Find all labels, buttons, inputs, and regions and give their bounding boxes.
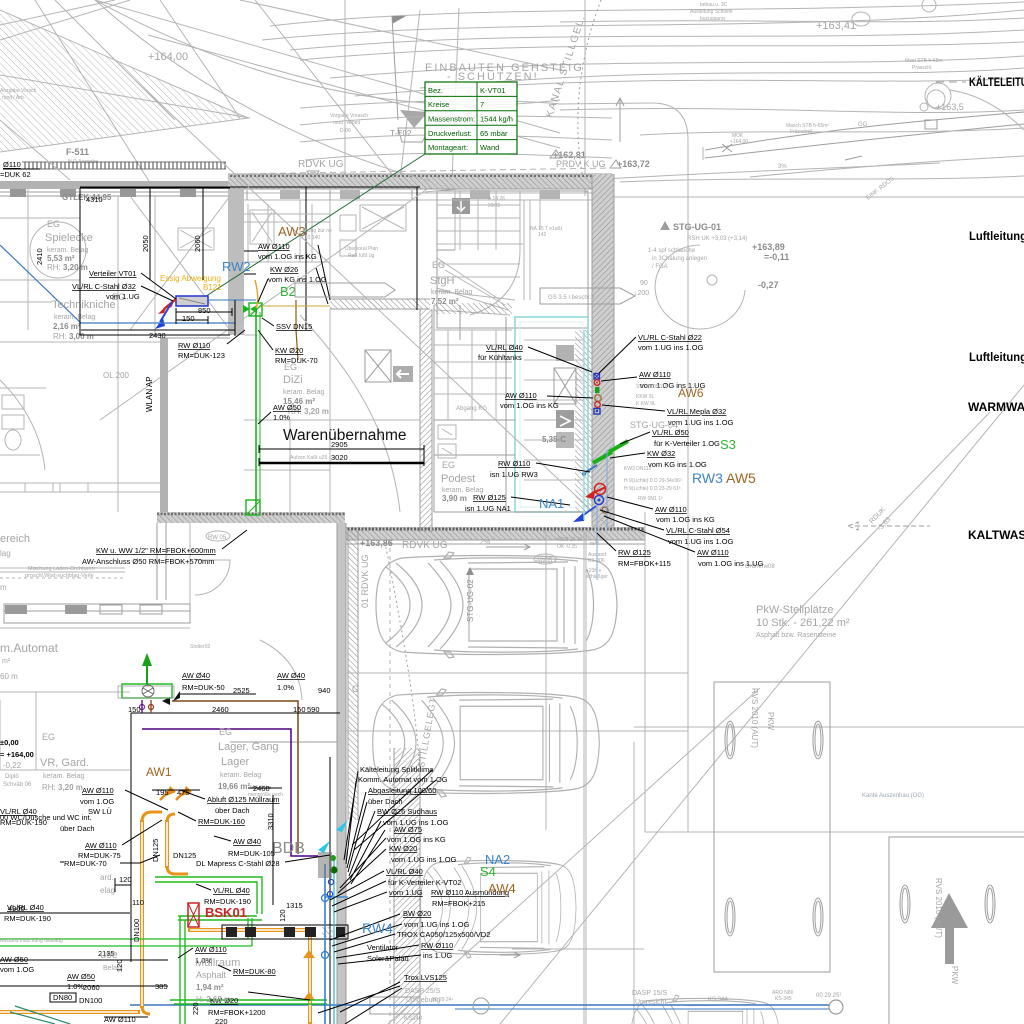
svg-text:1544 kg/h: 1544 kg/h xyxy=(480,115,513,124)
svg-text:GS 3.5 I beschr.b: GS 3.5 I beschr.b xyxy=(548,295,595,301)
svg-text:KS340: KS340 xyxy=(404,1016,423,1022)
svg-text:A 14 26: A 14 26 xyxy=(488,196,505,202)
svg-text:Lager: Lager xyxy=(221,756,249,768)
svg-text:WARMWASSER: WARMWASSER xyxy=(968,400,1024,414)
svg-text:VL/RL Ø40: VL/RL Ø40 xyxy=(0,807,37,816)
svg-text:AW5: AW5 xyxy=(726,470,756,486)
svg-text:Überkoral Plan: Überkoral Plan xyxy=(345,245,378,252)
svg-text:für K-Verteiler 1.OG: für K-Verteiler 1.OG xyxy=(654,439,720,448)
svg-text:RSH UK +3,03 (+3,14): RSH UK +3,03 (+3,14) xyxy=(687,236,747,242)
svg-text:VR, Gard.: VR, Gard. xyxy=(40,757,89,769)
svg-text:Soler&Palau: Soler&Palau xyxy=(367,954,409,963)
svg-text:AW Ø50: AW Ø50 xyxy=(67,972,95,981)
svg-text:Komm. Automat vom 1.OG: Komm. Automat vom 1.OG xyxy=(358,775,448,784)
svg-text:3020: 3020 xyxy=(331,453,348,462)
svg-text:1315: 1315 xyxy=(286,901,303,910)
svg-text:Ausleitung Schleife: Ausleitung Schleife xyxy=(690,9,733,15)
svg-text:AW Ø110: AW Ø110 xyxy=(505,391,537,400)
svg-text:RM=DUK-190: RM=DUK-190 xyxy=(0,818,47,827)
svg-text:-0,22: -0,22 xyxy=(3,761,22,770)
svg-text:= +164,00: = +164,00 xyxy=(0,750,34,759)
svg-text:VL/RL Mepla Ø32: VL/RL Mepla Ø32 xyxy=(667,407,726,416)
svg-text:2460: 2460 xyxy=(212,705,229,714)
svg-text:RM=DUK-160: RM=DUK-160 xyxy=(198,817,245,826)
svg-text:ereich: ereich xyxy=(0,533,30,545)
svg-text:RVS 2010 (AUT): RVS 2010 (AUT) xyxy=(750,688,759,748)
svg-text:B121: B121 xyxy=(203,283,222,292)
svg-text:KS-006: KS-006 xyxy=(588,558,605,564)
svg-text:DN100: DN100 xyxy=(79,996,102,1005)
svg-text:RM=DUK-70: RM=DUK-70 xyxy=(64,859,107,868)
svg-text:RDVK UG: RDVK UG xyxy=(298,159,344,170)
svg-text:AW1: AW1 xyxy=(146,765,172,779)
svg-text:use: use xyxy=(100,949,118,961)
svg-text:150: 150 xyxy=(182,314,195,323)
svg-text:Essig Abweigung: Essig Abweigung xyxy=(160,274,221,283)
svg-text:BW Ø26 Sudhaus: BW Ø26 Sudhaus xyxy=(377,807,437,816)
svg-text:EG: EG xyxy=(442,460,455,470)
svg-text:10 Stk. - 261,22 m²: 10 Stk. - 261,22 m² xyxy=(756,617,850,629)
svg-text:Massenstrom:: Massenstrom: xyxy=(428,115,475,124)
svg-text:Verteiler VT01: Verteiler VT01 xyxy=(89,269,137,278)
svg-text:RM=DUK-50: RM=DUK-50 xyxy=(182,683,225,692)
svg-text:AW Ø110: AW Ø110 xyxy=(104,1015,136,1024)
svg-text:2050: 2050 xyxy=(141,235,150,252)
svg-text:AW Ø110: AW Ø110 xyxy=(639,370,671,379)
svg-text:Auzug bür ne: Auzug bür ne xyxy=(302,228,332,234)
svg-text:Spielecke: Spielecke xyxy=(45,232,93,244)
svg-text:Kälteleitung Splitklima: Kälteleitung Splitklima xyxy=(360,765,434,774)
svg-text:RH: 3,00 m: RH: 3,00 m xyxy=(53,332,94,341)
svg-text:Mast STB h-65m: Mast STB h-65m xyxy=(905,58,943,64)
svg-text:2060: 2060 xyxy=(193,235,202,252)
svg-text:VL/RL Ø40: VL/RL Ø40 xyxy=(486,343,523,352)
svg-text:RH: 3,20 m: RH: 3,20 m xyxy=(47,263,88,272)
svg-text:120: 120 xyxy=(119,875,132,884)
svg-text:B2: B2 xyxy=(280,284,296,299)
svg-text:Ventilator: Ventilator xyxy=(367,943,399,952)
svg-text:G: G xyxy=(352,684,359,694)
svg-text:4310: 4310 xyxy=(86,195,103,204)
svg-text:SSV DN15: SSV DN15 xyxy=(276,322,312,331)
svg-text:rund / Arb.: rund / Arb. xyxy=(2,95,25,101)
svg-text:keram. Belag: keram. Belag xyxy=(220,772,261,779)
svg-text:keram. Belag: keram. Belag xyxy=(47,247,88,254)
svg-text:RM=DUK-123: RM=DUK-123 xyxy=(178,351,225,360)
svg-text:65 mbar: 65 mbar xyxy=(480,129,508,138)
svg-text:RDVK UG: RDVK UG xyxy=(402,540,448,551)
svg-text:RW Ø110: RW Ø110 xyxy=(498,459,530,468)
svg-text:Reß Iüßt üg: Reß Iüßt üg xyxy=(348,253,375,259)
svg-text:keram. Belag: keram. Belag xyxy=(431,289,472,296)
svg-text:RW4: RW4 xyxy=(362,920,393,936)
svg-text:+164,00: +164,00 xyxy=(730,139,748,145)
svg-text:OL 200: OL 200 xyxy=(103,371,129,380)
svg-text:F-511: F-511 xyxy=(66,147,89,157)
svg-text:isn 1.UG RW3: isn 1.UG RW3 xyxy=(490,470,538,479)
svg-text:RW 0N1 1²: RW 0N1 1² xyxy=(638,496,663,502)
svg-text:AW-Anschluss Ø50 RM=FBOK+570mm: AW-Anschluss Ø50 RM=FBOK+570mm xyxy=(82,557,215,566)
svg-text:+163,86: +163,86 xyxy=(360,538,393,548)
svg-text:vom KG ins 1.OG: vom KG ins 1.OG xyxy=(648,460,707,469)
svg-text:Abgasleitung 100/60: Abgasleitung 100/60 xyxy=(368,786,436,795)
svg-text:00 29 25¹: 00 29 25¹ xyxy=(816,993,841,999)
svg-text:3,90 m: 3,90 m xyxy=(442,494,467,503)
svg-text:PRDV K UG: PRDV K UG xyxy=(556,159,606,169)
svg-text:KW Ø20: KW Ø20 xyxy=(389,844,417,853)
svg-text:3310: 3310 xyxy=(266,813,275,830)
svg-text:PKW: PKW xyxy=(950,966,959,985)
svg-text:2,16 m²: 2,16 m² xyxy=(53,322,81,331)
svg-text:isn 1.UG NA1: isn 1.UG NA1 xyxy=(465,504,511,513)
svg-text:2060: 2060 xyxy=(83,983,100,992)
svg-text:KW u. WW 1/2" RM=FBOK+600mm: KW u. WW 1/2" RM=FBOK+600mm xyxy=(96,546,216,555)
svg-text:Ø110: Ø110 xyxy=(3,160,21,169)
svg-text:RW 05: RW 05 xyxy=(208,535,227,541)
svg-text:DN125: DN125 xyxy=(173,851,196,860)
svg-text:vom 1.OG ins KG: vom 1.OG ins KG xyxy=(656,515,715,524)
svg-text:Asphalt bzw. Rasensteine: Asphalt bzw. Rasensteine xyxy=(756,632,836,639)
svg-text:1.0%: 1.0% xyxy=(273,413,290,422)
svg-text:AW Ø110: AW Ø110 xyxy=(195,945,227,954)
svg-text:2410: 2410 xyxy=(35,248,44,265)
svg-text:KW3 DN110: KW3 DN110 xyxy=(624,466,652,472)
svg-text:WLAN AP: WLAN AP xyxy=(145,376,154,412)
svg-text:BW Ø20: BW Ø20 xyxy=(403,909,431,918)
svg-text:AW Ø110: AW Ø110 xyxy=(697,548,729,557)
svg-text:STG-UG-02: STG-UG-02 xyxy=(466,579,475,622)
svg-text:00 29 24¹: 00 29 24¹ xyxy=(432,997,453,1003)
svg-text:VL/RL Ø40: VL/RL Ø40 xyxy=(386,867,423,876)
svg-text:DN100: DN100 xyxy=(132,919,141,942)
svg-text:Aufzen Kaßt u25: Aufzen Kaßt u25 xyxy=(290,455,327,461)
svg-text:mAt: mAt xyxy=(590,541,600,547)
svg-text:NA1: NA1 xyxy=(539,496,564,511)
svg-text:142: 142 xyxy=(538,232,547,238)
svg-text:Wand: Wand xyxy=(480,143,499,152)
svg-text:bebau u. 3C: bebau u. 3C xyxy=(700,2,728,8)
svg-text:über Dach: über Dach xyxy=(215,806,250,815)
svg-text:5,35-C: 5,35-C xyxy=(542,435,566,444)
svg-text:=-0,11: =-0,11 xyxy=(764,252,789,262)
svg-text:RW3: RW3 xyxy=(692,470,723,486)
svg-text:RW Ø125: RW Ø125 xyxy=(473,493,506,502)
svg-text:EG: EG xyxy=(219,727,232,737)
svg-text:K KW 9L: K KW 9L xyxy=(636,401,656,407)
svg-text:3%: 3% xyxy=(778,164,787,170)
svg-text:AW6: AW6 xyxy=(678,386,704,400)
svg-text:Austand Indst.küng Glasäüg: Austand Indst.küng Glasäüg xyxy=(0,938,63,944)
svg-text:RW Ø110: RW Ø110 xyxy=(178,341,210,350)
svg-text:AW Ø50: AW Ø50 xyxy=(273,403,301,412)
svg-text:20/25: 20/25 xyxy=(488,203,501,209)
svg-text:RM=DUK-105: RM=DUK-105 xyxy=(228,849,275,858)
svg-text:KW Ø32: KW Ø32 xyxy=(647,449,675,458)
svg-text:m: m xyxy=(0,583,7,592)
svg-text:vom 1.OG ins KG: vom 1.OG ins KG xyxy=(500,401,559,410)
svg-text:K-VT01: K-VT01 xyxy=(480,86,505,95)
svg-text:VL/RL C-Stahl Ø22: VL/RL C-Stahl Ø22 xyxy=(638,333,702,342)
svg-text:Bez.: Bez. xyxy=(428,86,443,95)
svg-text:über Dach: über Dach xyxy=(60,824,95,833)
svg-text:keram. Belag: keram. Belag xyxy=(43,773,84,780)
svg-text:4960: 4960 xyxy=(8,904,25,913)
svg-text:+163,5: +163,5 xyxy=(936,102,964,112)
svg-text:elag: elag xyxy=(100,886,115,895)
svg-text:SW 45 DN110: SW 45 DN110 xyxy=(636,384,668,390)
svg-text:Luftleitungen: Luftleitungen xyxy=(969,350,1024,364)
svg-text:vom 1.UG ins 1.OG: vom 1.UG ins 1.OG xyxy=(404,920,470,929)
svg-text:VL/RL C-Stahl Ø54: VL/RL C-Stahl Ø54 xyxy=(666,526,730,535)
svg-text:-0,27: -0,27 xyxy=(758,280,779,290)
svg-text:DiZi: DiZi xyxy=(283,374,303,386)
svg-text:GG: GG xyxy=(858,122,868,128)
svg-text:AW Ø110: AW Ø110 xyxy=(82,786,114,795)
svg-text:AW05: AW05 xyxy=(536,558,553,564)
svg-text:TROX CA050/125x500/VD2: TROX CA050/125x500/VD2 xyxy=(397,930,490,939)
svg-text:Kante Auszenhau (OG): Kante Auszenhau (OG) xyxy=(862,793,924,799)
svg-text:RW Ø125: RW Ø125 xyxy=(618,548,651,557)
svg-text:Müllraum: Müllraum xyxy=(195,957,240,969)
svg-text:Abgang KG: Abgang KG xyxy=(456,406,487,412)
svg-text:EG: EG xyxy=(47,219,60,229)
svg-text:590: 590 xyxy=(307,705,320,714)
svg-text:STG-UG-01: STG-UG-01 xyxy=(673,222,721,232)
svg-text:PKW: PKW xyxy=(766,712,775,731)
svg-text:AW Ø110: AW Ø110 xyxy=(655,505,687,514)
svg-text:2%: 2% xyxy=(480,539,490,546)
svg-text:110: 110 xyxy=(132,898,144,907)
svg-text:2430: 2430 xyxy=(149,331,166,340)
svg-text:KW Ø20: KW Ø20 xyxy=(275,346,303,355)
svg-text:KALTWASSER: KALTWASSER xyxy=(968,528,1024,542)
svg-text:RM=FBOK+215: RM=FBOK+215 xyxy=(432,899,485,908)
svg-text:vom 1.OG: vom 1.OG xyxy=(80,797,114,806)
svg-text:1.0%: 1.0% xyxy=(277,683,294,692)
svg-text:120: 120 xyxy=(278,909,287,922)
svg-text:KKW 9L: KKW 9L xyxy=(636,394,655,400)
svg-text:+164,00: +164,00 xyxy=(148,51,188,63)
svg-text:ard.: ard. xyxy=(100,873,114,882)
svg-text:m²: m² xyxy=(2,658,11,665)
svg-text:Mischung Laden-Drehturen: Mischung Laden-Drehturen xyxy=(28,566,95,572)
svg-text:=DUK 62: =DUK 62 xyxy=(0,170,31,179)
svg-text:01 RDVK UG: 01 RDVK UG xyxy=(360,554,370,608)
svg-text:475: 475 xyxy=(177,788,190,797)
svg-text:Asphalt: Asphalt xyxy=(196,970,227,980)
svg-text:VL/RL C-Stahl Ø32: VL/RL C-Stahl Ø32 xyxy=(72,282,136,291)
svg-text:RM=FBOK+115: RM=FBOK+115 xyxy=(618,559,671,568)
svg-text:vom 1.OG ins KG: vom 1.OG ins KG xyxy=(387,835,446,844)
svg-text:H 9(Lichte) 0 D 29-34x36³: H 9(Lichte) 0 D 29-34x36³ xyxy=(624,478,682,484)
svg-text:RM=DUK-190: RM=DUK-190 xyxy=(4,914,51,923)
svg-text:AW Ø40: AW Ø40 xyxy=(277,671,305,680)
svg-text:Montageart:: Montageart: xyxy=(428,143,468,152)
svg-text:±0,00: ±0,00 xyxy=(0,738,19,747)
svg-text:keram. Belag: keram. Belag xyxy=(442,487,483,494)
svg-text:↓200: ↓200 xyxy=(634,290,649,297)
svg-text:RH: 3,20 m: RH: 3,20 m xyxy=(42,783,83,792)
svg-text:D-06: D-06 xyxy=(340,128,351,134)
svg-text:I 10 140: I 10 140 xyxy=(302,235,320,241)
svg-text:AW Ø110: AW Ø110 xyxy=(85,841,117,850)
svg-text:DASP 15/S: DASP 15/S xyxy=(632,990,668,997)
svg-text:DN125: DN125 xyxy=(151,839,160,862)
svg-text:KÄLTELEITUNG: KÄLTELEITUNG xyxy=(969,74,1024,89)
svg-text:vom 1.OG ins KG: vom 1.OG ins KG xyxy=(258,252,317,261)
svg-text:+163,72: +163,72 xyxy=(617,159,650,169)
svg-text:60 m: 60 m xyxy=(0,672,18,681)
svg-text:940: 940 xyxy=(318,686,331,695)
svg-text:Kreise: Kreise xyxy=(428,100,449,109)
svg-text:Druckverlust:: Druckverlust: xyxy=(428,129,472,138)
svg-text:proschl.Wod-suchblag-Verle: proschl.Wod-suchblag-Verle xyxy=(25,573,94,579)
svg-text:Lager, Gang: Lager, Gang xyxy=(218,741,279,753)
svg-text:850: 850 xyxy=(198,306,211,315)
svg-text:Vorgabe Vorasch: Vorgabe Vorasch xyxy=(330,113,368,119)
svg-text:EG: EG xyxy=(42,732,55,742)
svg-text:OK -0 25: OK -0 25 xyxy=(557,544,577,550)
svg-text:220: 220 xyxy=(191,1002,200,1015)
svg-text:EG: EG xyxy=(432,260,445,270)
svg-text:vom 1.UG ins 1.OG: vom 1.UG ins 1.OG xyxy=(638,343,704,352)
svg-text:in 3Chalung anlegen: in 3Chalung anlegen xyxy=(652,256,707,262)
svg-text:KS 344: KS 344 xyxy=(708,997,728,1003)
svg-text:EG: EG xyxy=(284,362,297,372)
svg-text:RM=FBOK+1200: RM=FBOK+1200 xyxy=(208,1008,266,1017)
svg-text:BDB: BDB xyxy=(272,840,305,857)
svg-text:keram. Belag: keram. Belag xyxy=(54,314,95,321)
svg-text:ins 1.UG: ins 1.UG xyxy=(423,951,452,960)
svg-text:Trox LVS125: Trox LVS125 xyxy=(404,973,447,982)
svg-text:2525: 2525 xyxy=(233,686,250,695)
svg-text:StgH: StgH xyxy=(430,275,455,287)
svg-text:5,53 m²: 5,53 m² xyxy=(47,254,75,263)
svg-text:AW Ø40: AW Ø40 xyxy=(233,837,261,846)
svg-text:90: 90 xyxy=(640,280,648,287)
svg-text:120: 120 xyxy=(115,959,124,972)
svg-text:AW4: AW4 xyxy=(488,881,516,896)
svg-text:RVS 2010 (AUT): RVS 2010 (AUT) xyxy=(934,878,943,938)
svg-text:für K-Verteiler K-VT02: für K-Verteiler K-VT02 xyxy=(388,878,461,887)
svg-text:Prasschl.: Prasschl. xyxy=(912,65,933,71)
svg-text:für Kühltanks: für Kühltanks xyxy=(478,353,522,362)
svg-text:KW Ø26: KW Ø26 xyxy=(270,265,298,274)
svg-text:RW Ø110: RW Ø110 xyxy=(421,941,453,950)
svg-text:2905: 2905 xyxy=(331,440,348,449)
svg-text:H: 2,68 m: H: 2,68 m xyxy=(196,995,231,1004)
svg-text:Diplö: Diplö xyxy=(5,774,19,780)
svg-text:DL Mapress C-Stahl Ø28: DL Mapress C-Stahl Ø28 xyxy=(196,859,280,868)
svg-text:S3: S3 xyxy=(720,437,736,452)
svg-text:19,66 m²: 19,66 m² xyxy=(218,782,250,791)
svg-text:RW2: RW2 xyxy=(222,259,251,274)
svg-text:KS-345: KS-345 xyxy=(775,996,792,1002)
svg-text:AW Ø75: AW Ø75 xyxy=(394,825,422,834)
svg-text:vom 1.UG ins 1.OG: vom 1.UG ins 1.OG xyxy=(668,537,734,546)
svg-text:vom 1.UG: vom 1.UG xyxy=(106,292,140,301)
svg-text:H 9(Lichte) 0 D 23-29 61³: H 9(Lichte) 0 D 23-29 61³ xyxy=(624,486,681,492)
svg-text:150: 150 xyxy=(128,705,141,714)
svg-text:T-E02: T-E02 xyxy=(390,129,412,138)
svg-text:+163,89: +163,89 xyxy=(752,242,785,252)
svg-text:WDB 25 25: WDB 25 25 xyxy=(557,537,583,543)
svg-text:DASP 25/S: DASP 25/S xyxy=(405,988,441,995)
svg-text:vom 1.OG ins 1.UG: vom 1.OG ins 1.UG xyxy=(698,559,764,568)
svg-text:lag: lag xyxy=(0,549,11,558)
svg-text:1-4 spf schlauche: 1-4 spf schlauche xyxy=(648,248,696,254)
svg-text:DN80: DN80 xyxy=(53,993,72,1002)
svg-text:7: 7 xyxy=(480,100,484,109)
svg-text:150: 150 xyxy=(293,705,306,714)
svg-text:1,94 m²: 1,94 m² xyxy=(196,983,224,992)
svg-text:über Dach: über Dach xyxy=(368,797,403,806)
svg-text:keram. Belag: keram. Belag xyxy=(283,389,324,396)
svg-text:Stotter02: Stotter02 xyxy=(190,644,211,650)
svg-text:STG-UG-04: STG-UG-04 xyxy=(630,420,678,430)
svg-text:vom 1.UG ins 1.OG: vom 1.UG ins 1.OG xyxy=(391,855,457,864)
svg-text:220: 220 xyxy=(215,1017,228,1024)
svg-text:Abluft Ø125 Müllraum: Abluft Ø125 Müllraum xyxy=(207,795,280,804)
svg-text:m.Automat: m.Automat xyxy=(0,641,59,655)
svg-text:AW Ø40: AW Ø40 xyxy=(182,671,210,680)
svg-text:vom 1.OG: vom 1.OG xyxy=(0,965,34,974)
svg-text:195: 195 xyxy=(156,788,169,797)
svg-text:AW Ø110: AW Ø110 xyxy=(258,242,290,251)
svg-text:7,52 m²: 7,52 m² xyxy=(431,297,459,306)
svg-text:Podest: Podest xyxy=(441,473,475,485)
svg-text:Anzgabe Vorsch: Anzgabe Vorsch xyxy=(0,88,37,94)
svg-text:BSK01: BSK01 xyxy=(205,905,247,920)
svg-text:- SCHÜTZEN!: - SCHÜTZEN! xyxy=(447,71,539,83)
svg-text:vom 1.UG: vom 1.UG xyxy=(389,888,423,897)
svg-text:Luftleitungen: Luftleitungen xyxy=(969,229,1024,243)
svg-text:Schväb 06: Schväb 06 xyxy=(3,782,32,788)
svg-text:S4: S4 xyxy=(480,864,496,879)
svg-text:VL/RL Ø40: VL/RL Ø40 xyxy=(213,886,250,895)
